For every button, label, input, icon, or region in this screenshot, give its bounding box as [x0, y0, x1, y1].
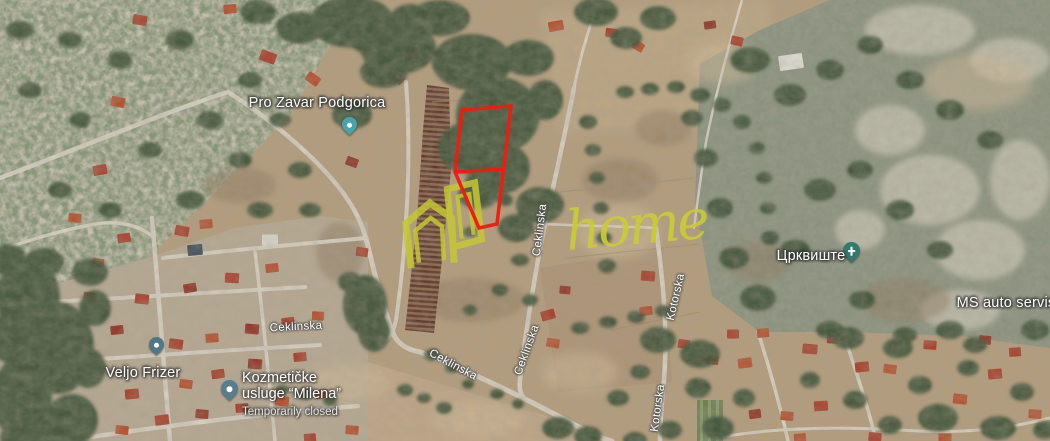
poi-label-crkviste[interactable]: Црквиште: [777, 248, 846, 264]
poi-label-line2: usluge “Milena”: [242, 386, 341, 402]
poi-label-kozmeticke-usluge-milena[interactable]: Kozmetičke usluge “Milena” Temporarily c…: [242, 370, 341, 420]
poi-label-pro-zavar-podgorica[interactable]: Pro Zavar Podgorica: [249, 95, 386, 111]
parcel-boundary-highlight: [455, 106, 511, 228]
poi-status-temporarily-closed: Temporarily closed: [242, 404, 341, 420]
poi-label-line1: Kozmetičke: [242, 370, 341, 386]
parcel-divider-line: [455, 169, 503, 172]
poi-label-ms-auto-servis[interactable]: MS auto servis: [957, 295, 1050, 311]
satellite-map-canvas[interactable]: home Pro Zavar Podgorica Veljo Frizer Ko…: [0, 0, 1050, 441]
poi-label-veljo-frizer[interactable]: Veljo Frizer: [106, 365, 181, 381]
